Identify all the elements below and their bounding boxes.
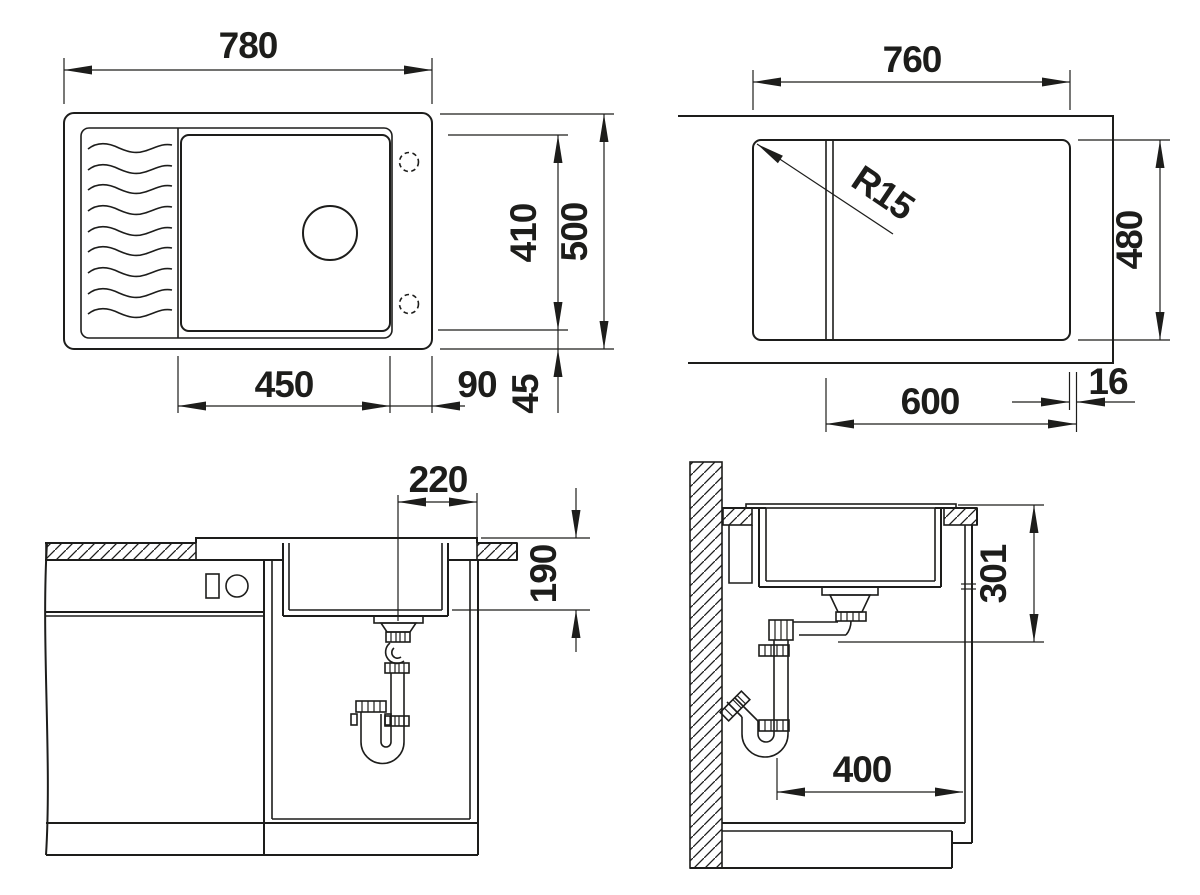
dim-90: 90 [390,356,497,413]
appliance-control-slot [206,574,219,598]
dim-label-301: 301 [973,544,1014,603]
dim-label-400: 400 [833,749,892,790]
sink-technical-drawing: 780 500 410 45 45 [0,0,1200,895]
worktop-section-side-left [723,508,752,525]
dim-600: 600 [826,378,1076,432]
dim-220: 220 [398,459,477,541]
dim-780: 780 [64,25,432,104]
bowl-section-front [283,543,448,616]
dim-label-600: 600 [901,381,960,422]
dim-r15: R15 [757,144,922,234]
sink-inner-rim [81,128,392,338]
side-section-view: 301 400 [690,462,1044,868]
dim-label-450: 450 [255,364,314,405]
worktop-outline [678,116,1113,363]
cutout-outline [753,140,1070,340]
dim-190: 190 [452,488,590,652]
dim-450: 450 [178,356,390,413]
cabinet-side [690,525,976,868]
drainboard-waves [88,144,172,318]
siphon-front [351,616,423,764]
sink-rim-front [196,538,477,543]
dim-label-r15: R15 [845,157,922,228]
cabinet-break-edge [45,543,48,855]
top-view-cutout: R15 760 480 600 [678,39,1170,432]
dim-label-410: 410 [503,203,544,262]
wall-section [690,462,722,868]
dim-label-780: 780 [219,25,278,66]
dim-label-45: 45 [505,374,546,414]
dim-label-500: 500 [554,202,595,261]
dim-410: 410 [438,135,568,330]
top-view-sink: 780 500 410 45 45 [64,25,614,414]
tap-hole-top [400,153,419,172]
dim-label-16: 16 [1088,361,1128,402]
worktop-section-right [477,543,517,560]
dim-label-90: 90 [457,364,497,405]
bowl-outline [181,135,390,331]
wall-batten [729,525,752,583]
sink-rim-side [746,504,956,508]
dim-400: 400 [777,749,963,800]
drain-hole [303,206,357,260]
tap-hole-bottom [400,295,419,314]
dim-45: 45 [505,330,563,414]
worktop-section-left [46,543,196,560]
dim-480: 480 [1078,140,1170,340]
dim-label-220: 220 [409,459,468,500]
dim-label-190: 190 [523,544,564,603]
dim-16: 16 [1012,361,1135,432]
technical-drawing-page: 780 500 410 45 45 [0,0,1200,895]
bowl-section-side [759,508,941,587]
dim-label-480: 480 [1109,210,1150,269]
front-section-view: 220 190 [45,459,590,855]
worktop-section-side-right [944,508,977,525]
dim-label-760: 760 [883,39,942,80]
appliance-control-knob [226,575,248,597]
siphon-side [720,587,878,757]
dim-760: 760 [753,39,1070,110]
